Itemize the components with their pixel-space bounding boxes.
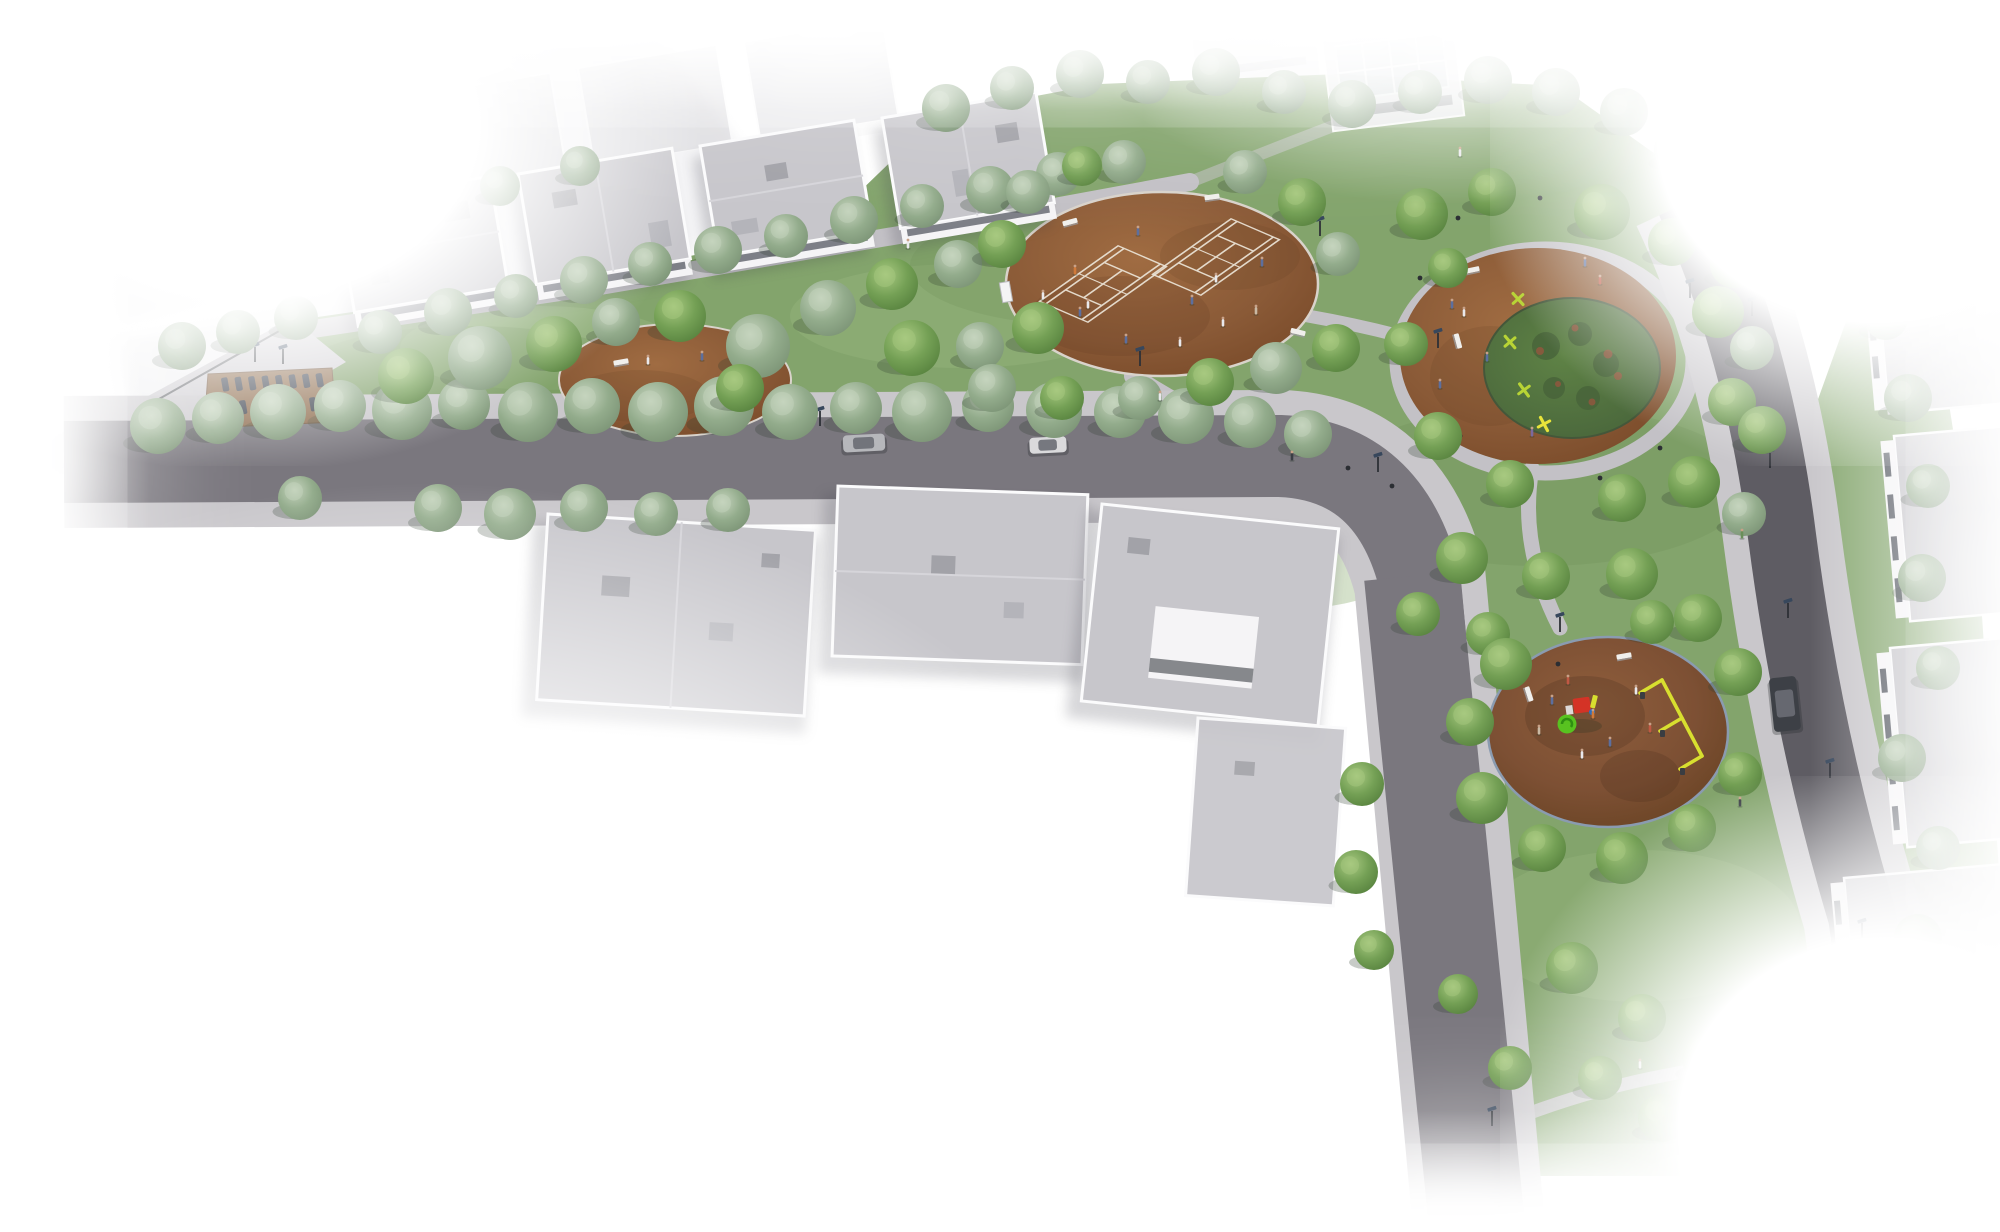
car-sedan <box>841 433 888 455</box>
bollard-light <box>1538 196 1543 201</box>
tree <box>1050 50 1104 98</box>
bollard-light <box>1456 216 1461 221</box>
bollard-light <box>1346 466 1351 471</box>
tree <box>152 322 206 370</box>
main-street-south-leg <box>1412 576 1476 1216</box>
bollard-light <box>1658 446 1663 451</box>
site-plan-rendering <box>40 16 2000 1216</box>
bollard-light <box>1598 476 1603 481</box>
tree <box>211 310 261 354</box>
south-block-3-courtyard <box>1065 503 1340 744</box>
tree <box>269 296 319 340</box>
tree <box>1458 56 1512 104</box>
tree <box>916 84 970 132</box>
bollard-light <box>1418 276 1423 281</box>
south-block-1 <box>522 513 818 734</box>
rendering-canvas <box>40 16 2000 1216</box>
planting-bed <box>1484 298 1660 438</box>
south-block-4 <box>1186 718 1346 906</box>
tree <box>1121 60 1171 104</box>
north-east-road <box>1688 68 2000 212</box>
spiral-slide <box>1558 715 1577 734</box>
tree <box>1594 88 1648 136</box>
tree <box>1526 68 1580 116</box>
east-building-4 <box>1830 864 2000 1084</box>
tree <box>1186 48 1240 96</box>
play-tower <box>1572 697 1591 714</box>
south-block-2 <box>817 486 1089 683</box>
bollard-light <box>1556 662 1561 667</box>
tree <box>985 66 1035 110</box>
car-suv <box>1767 676 1804 736</box>
tree <box>1349 930 1394 970</box>
tree <box>1649 128 1699 172</box>
bollard-light <box>1390 484 1395 489</box>
car-hatchback <box>1027 436 1069 457</box>
